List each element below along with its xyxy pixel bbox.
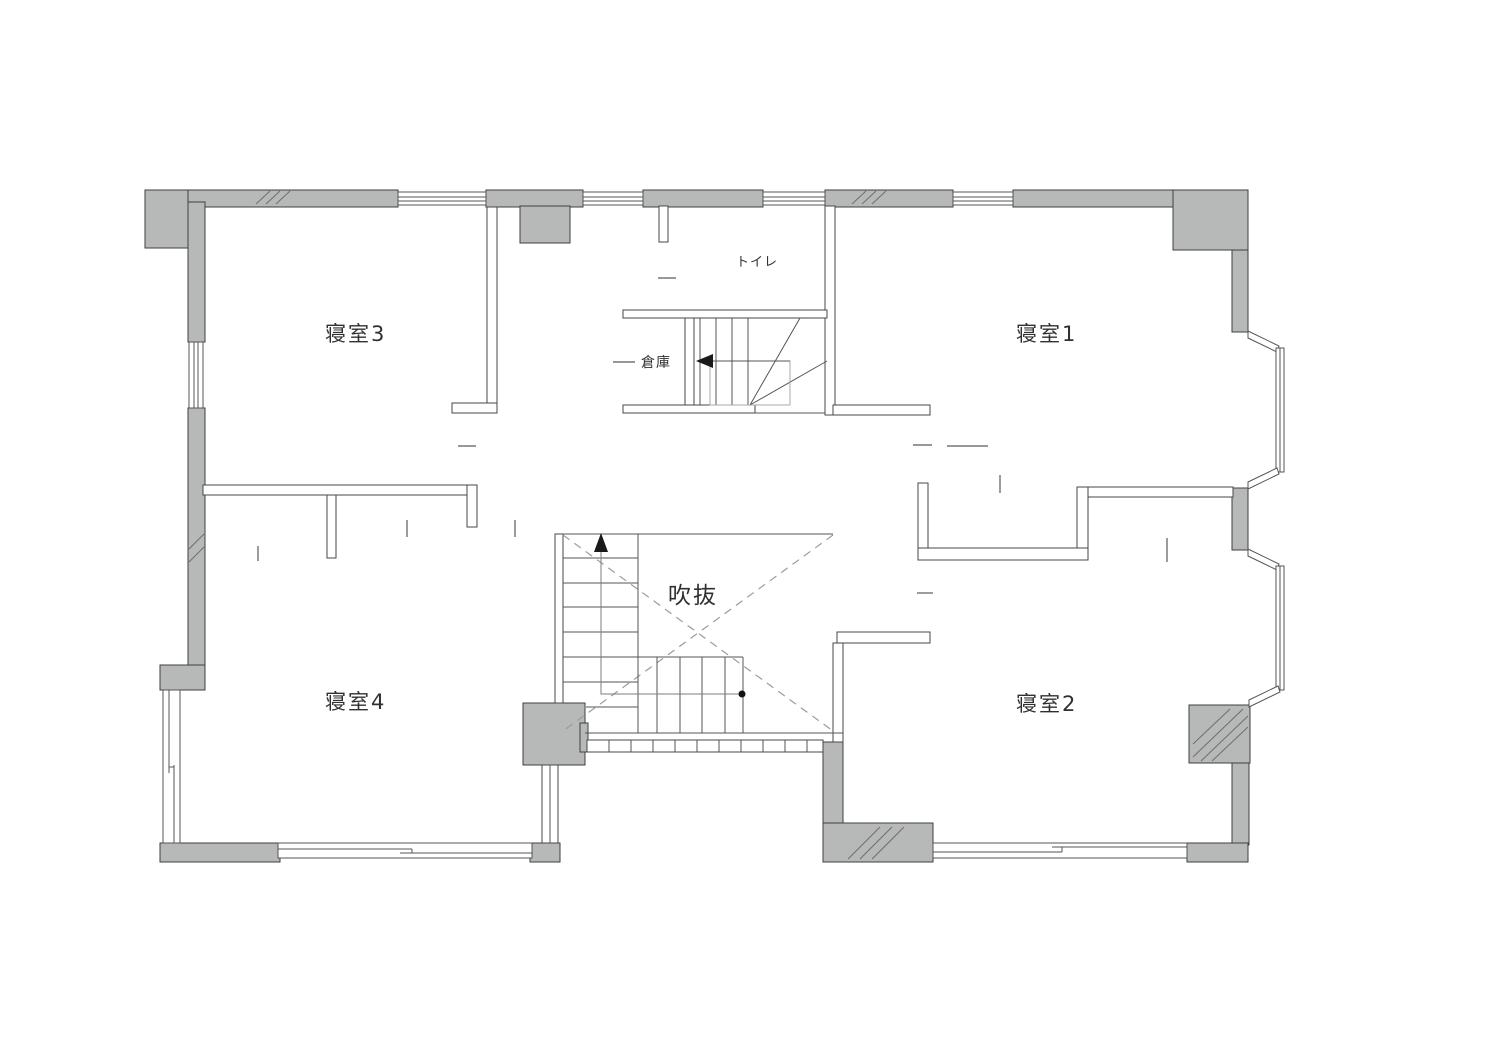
wall-top-block-2 bbox=[486, 190, 583, 207]
wall-stair-bottom-right bbox=[833, 405, 930, 415]
wall-corner-bottom-right bbox=[1187, 843, 1248, 862]
wall-left-upper bbox=[188, 202, 205, 342]
wall-bedroom3-bedroom4 bbox=[203, 485, 477, 495]
stair-direction-path bbox=[601, 550, 742, 694]
wall-top-band-4 bbox=[825, 190, 953, 207]
bay-window-1-top bbox=[1248, 331, 1279, 352]
label-bedroom4: 寝室4 bbox=[325, 686, 386, 716]
bay-window-2-top bbox=[1248, 549, 1279, 570]
wall-toilet-stub bbox=[659, 206, 668, 242]
wall-block-below-pillar bbox=[530, 843, 560, 862]
label-toilet: トイレ bbox=[736, 251, 778, 270]
window-top-3 bbox=[763, 192, 825, 205]
wall-bedroom4-north-end bbox=[467, 485, 477, 527]
wall-bedroom4-stub bbox=[327, 495, 336, 558]
label-bedroom1: 寝室1 bbox=[1016, 318, 1077, 348]
stairs-down-arrow bbox=[696, 354, 713, 368]
label-storage: 倉庫 bbox=[641, 352, 671, 372]
window-top-1 bbox=[398, 192, 486, 205]
wall-corner-top-right bbox=[1173, 190, 1248, 250]
pillar-center bbox=[523, 703, 585, 765]
bay-window-1-bottom bbox=[1248, 468, 1279, 489]
wall-left-lower bbox=[188, 408, 205, 665]
void-cross-lines bbox=[563, 535, 833, 731]
bay-window-2-bottom bbox=[1249, 686, 1280, 707]
wall-void-right-gray bbox=[823, 742, 843, 823]
floor-plan-drawing bbox=[0, 0, 1500, 1052]
stairs-upper-guide bbox=[710, 361, 790, 405]
wall-top-band-3 bbox=[643, 190, 763, 207]
floor-plan-canvas: 寝室3 寝室1 寝室4 寝室2 トイレ 倉庫 吹抜 bbox=[0, 0, 1500, 1052]
wall-void-right-thin bbox=[833, 643, 843, 742]
void-area bbox=[563, 534, 843, 733]
wall-corner-bottom-left bbox=[160, 843, 280, 862]
window-bedroom4-sliding bbox=[278, 843, 532, 858]
wall-top-band-1 bbox=[188, 190, 398, 207]
wall-stair-bottom-left bbox=[623, 405, 755, 413]
wall-right-block-mid bbox=[1232, 488, 1248, 550]
wall-top-block-2-stub bbox=[520, 206, 570, 243]
wall-left-jog-block bbox=[160, 665, 205, 690]
wall-right-strip-2 bbox=[1232, 763, 1249, 845]
stairs-upper bbox=[696, 318, 827, 413]
wall-corner-top-left bbox=[145, 190, 188, 248]
label-bedroom3: 寝室3 bbox=[325, 318, 386, 348]
wall-void-left bbox=[555, 534, 563, 703]
window-left-upper bbox=[189, 342, 203, 408]
railing-bar bbox=[587, 740, 823, 752]
wall-hatching bbox=[189, 191, 1248, 859]
stair-start-dot bbox=[739, 691, 746, 698]
window-bedroom2-sliding bbox=[933, 843, 1187, 858]
wall-closet-right bbox=[1077, 487, 1088, 548]
wall-top-band-5 bbox=[1013, 190, 1173, 207]
label-bedroom2: 寝室2 bbox=[1016, 688, 1077, 718]
window-top-2 bbox=[583, 192, 643, 205]
void-railing bbox=[587, 740, 823, 752]
wall-stair-left bbox=[685, 318, 694, 405]
wall-bedroom3-east-foot bbox=[452, 403, 497, 413]
stairs-lower bbox=[563, 533, 746, 733]
wall-bedroom2-stub bbox=[837, 632, 930, 643]
window-top-4 bbox=[953, 192, 1013, 205]
stairs-lower-bottom-treads bbox=[638, 657, 743, 733]
wall-right-strip-1 bbox=[1232, 250, 1248, 332]
wall-bedroom3-east bbox=[487, 207, 497, 413]
wall-stair-top bbox=[623, 310, 827, 318]
label-void: 吹抜 bbox=[668, 576, 718, 610]
wall-bedroom1-south bbox=[1088, 487, 1233, 497]
wall-closet-bottom bbox=[918, 548, 1088, 560]
stair-up-arrow bbox=[594, 533, 608, 552]
